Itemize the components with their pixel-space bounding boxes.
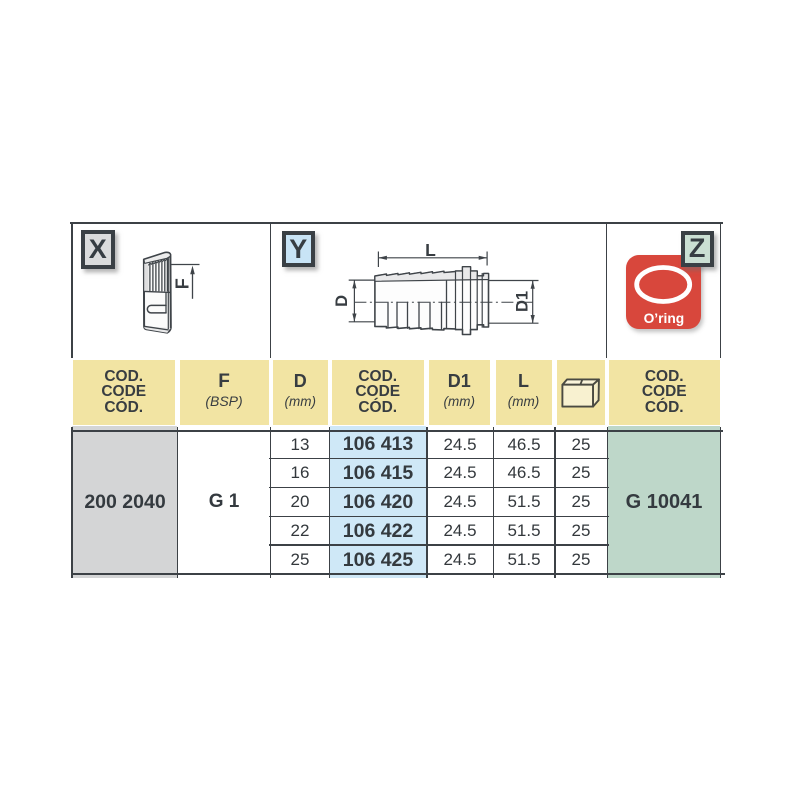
svg-text:D1: D1	[514, 291, 532, 312]
svg-text:D: D	[333, 295, 351, 307]
svg-text:F: F	[173, 278, 193, 289]
svg-text:L: L	[425, 240, 436, 260]
